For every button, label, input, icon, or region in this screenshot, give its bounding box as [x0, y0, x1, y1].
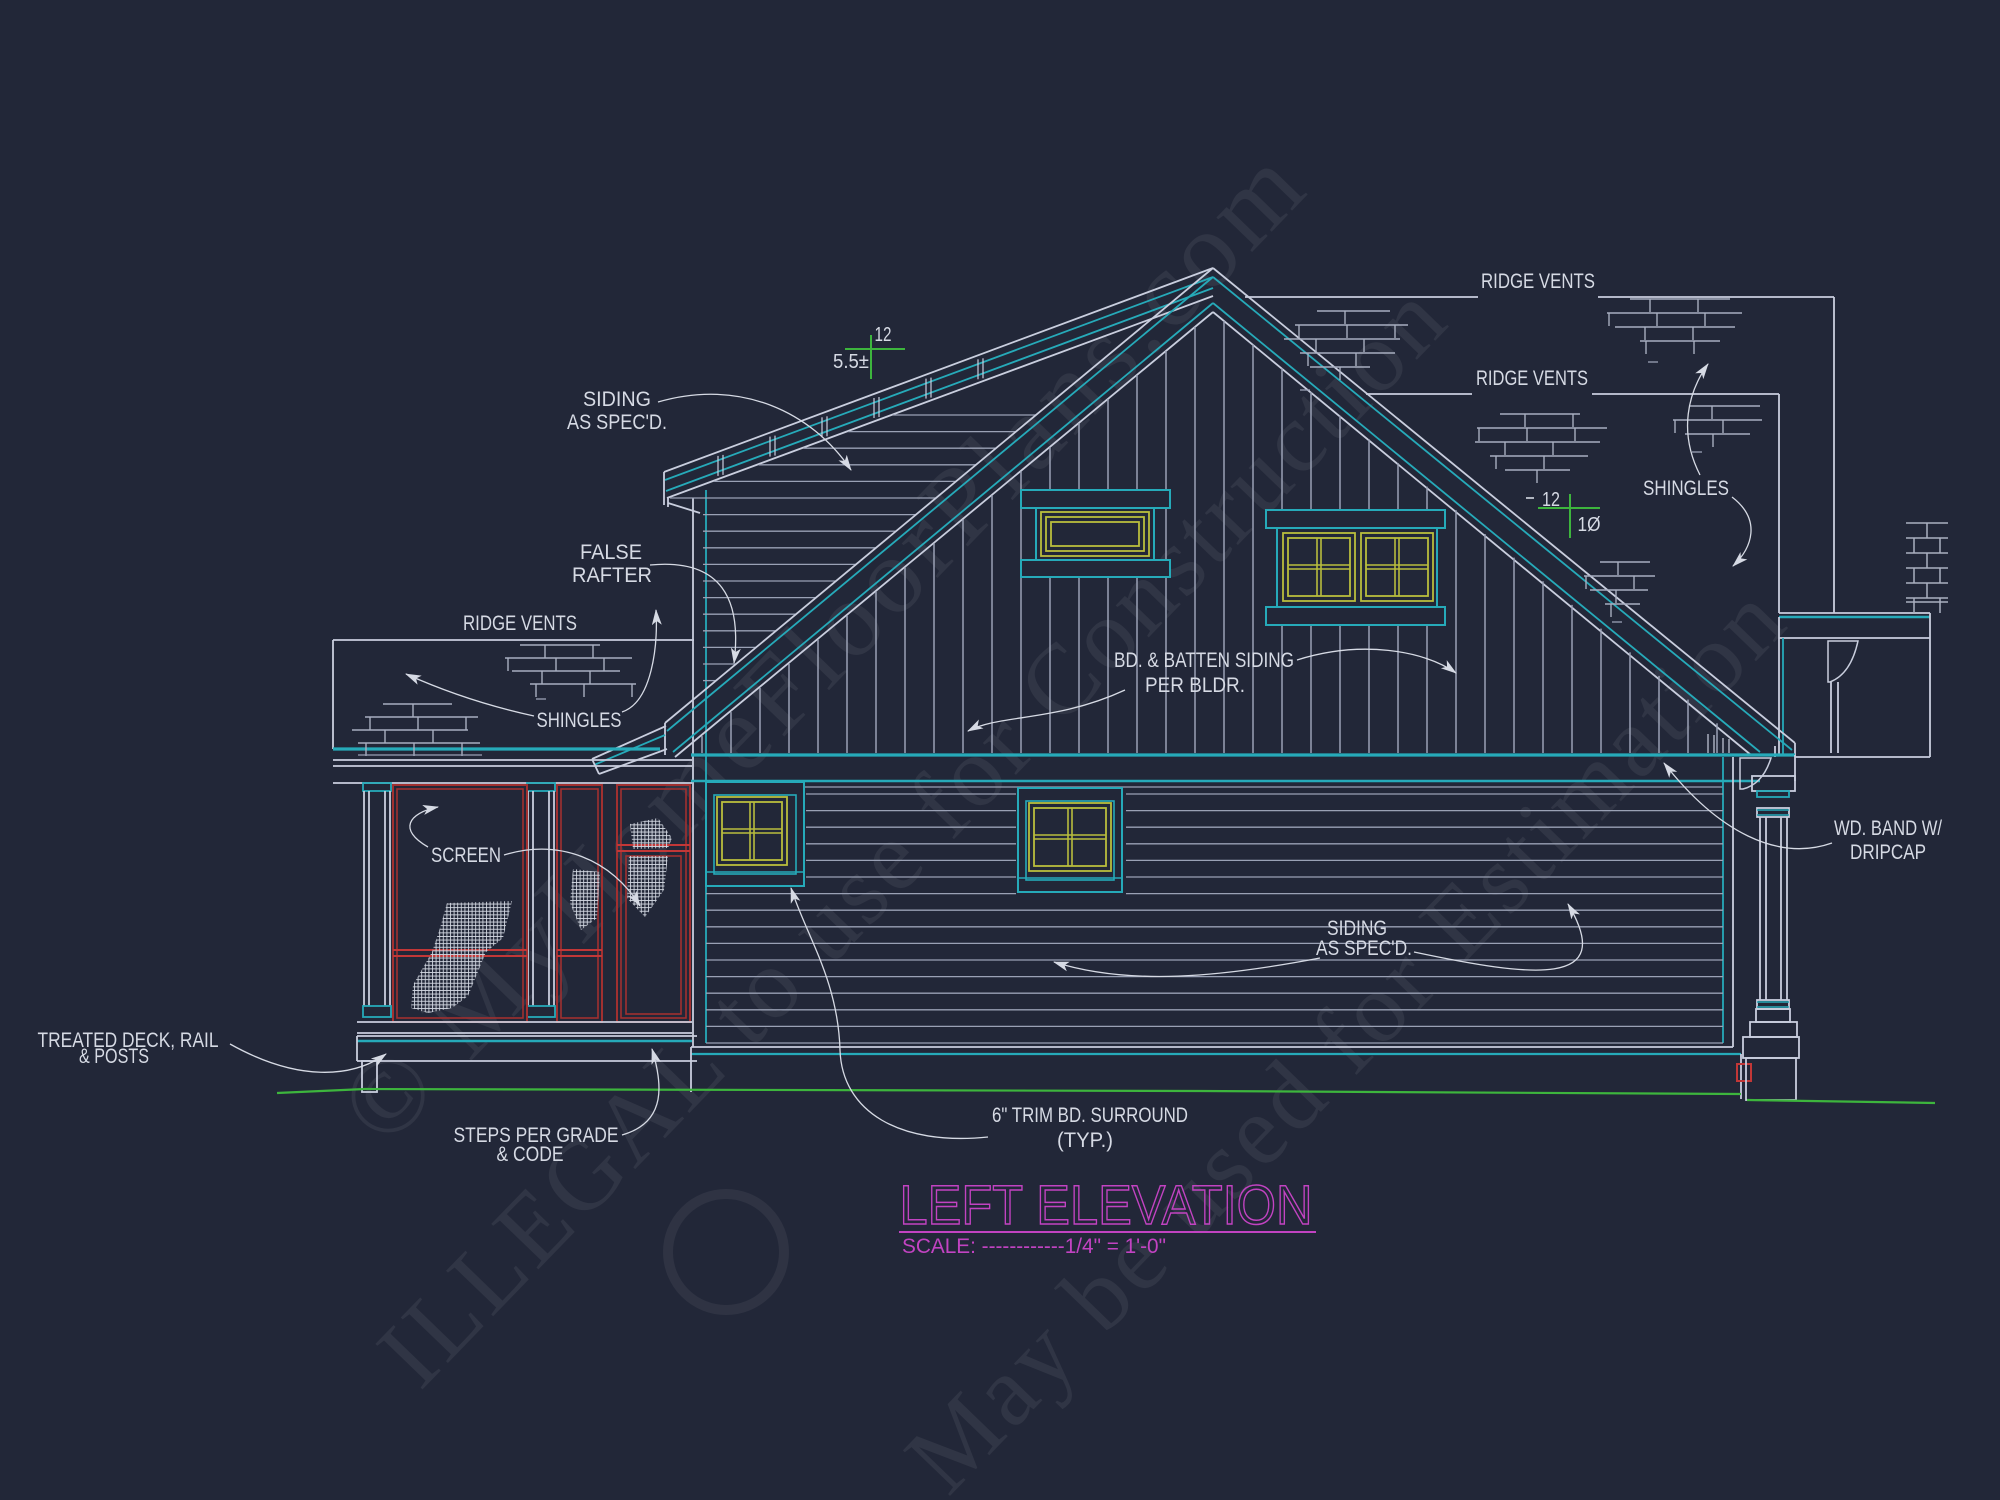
- svg-text:PER BLDR.: PER BLDR.: [1145, 674, 1245, 697]
- svg-text:LEFT ELEVATION: LEFT ELEVATION: [900, 1173, 1313, 1236]
- svg-text:5.5±: 5.5±: [833, 351, 869, 373]
- svg-text:RAFTER: RAFTER: [572, 564, 652, 587]
- svg-text:SHINGLES: SHINGLES: [1643, 477, 1729, 500]
- svg-text:& POSTS: & POSTS: [79, 1045, 149, 1068]
- svg-text:(TYP.): (TYP.): [1057, 1129, 1113, 1152]
- svg-text:RIDGE VENTS: RIDGE VENTS: [1476, 367, 1588, 390]
- svg-text:12: 12: [875, 324, 892, 346]
- svg-text:SCREEN: SCREEN: [431, 844, 501, 867]
- svg-text:1Ø: 1Ø: [1578, 514, 1601, 536]
- svg-text:SHINGLES: SHINGLES: [537, 709, 622, 732]
- svg-text:WD. BAND W/: WD. BAND W/: [1834, 817, 1942, 840]
- svg-text:AS SPEC'D.: AS SPEC'D.: [567, 411, 667, 434]
- svg-text:BD. & BATTEN SIDING: BD. & BATTEN SIDING: [1114, 649, 1294, 672]
- svg-text:SIDING: SIDING: [583, 388, 651, 411]
- svg-text:& CODE: & CODE: [497, 1143, 564, 1166]
- svg-text:12: 12: [1542, 489, 1560, 511]
- svg-text:SCALE: ------------1/4" = 1'-0: SCALE: ------------1/4" = 1'-0": [902, 1235, 1166, 1258]
- svg-text:AS SPEC'D.: AS SPEC'D.: [1316, 937, 1412, 960]
- svg-text:RIDGE VENTS: RIDGE VENTS: [463, 612, 577, 635]
- svg-text:RIDGE VENTS: RIDGE VENTS: [1481, 270, 1595, 293]
- svg-text:DRIPCAP: DRIPCAP: [1850, 841, 1926, 864]
- svg-text:6" TRIM BD. SURROUND: 6" TRIM BD. SURROUND: [992, 1104, 1188, 1127]
- svg-text:FALSE: FALSE: [580, 541, 642, 564]
